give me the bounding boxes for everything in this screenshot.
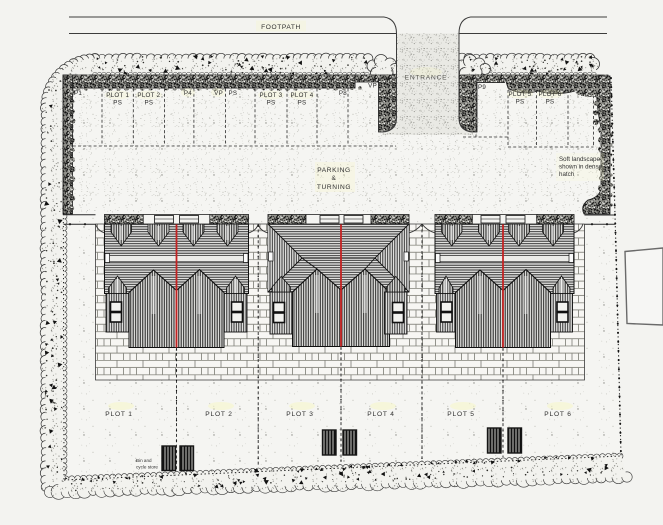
- svg-text:PS: PS: [298, 100, 307, 107]
- svg-text:PS: PS: [267, 100, 276, 107]
- svg-text:ENTRANCE: ENTRANCE: [405, 75, 448, 82]
- svg-text:PLOT 1: PLOT 1: [106, 92, 129, 99]
- svg-text:PLOT 5: PLOT 5: [447, 411, 474, 418]
- svg-text:PLOT 4: PLOT 4: [290, 92, 313, 99]
- svg-text:VP: VP: [368, 83, 377, 90]
- svg-text:PLOT 1: PLOT 1: [105, 411, 132, 418]
- svg-text:P1: P1: [74, 90, 82, 97]
- svg-text:Soft landscape: Soft landscape: [559, 156, 600, 163]
- svg-text:PLOT 4: PLOT 4: [367, 411, 394, 418]
- svg-text:PLOT 5: PLOT 5: [508, 91, 531, 98]
- svg-text:PS: PS: [113, 100, 122, 107]
- svg-text:Bin and: Bin and: [136, 458, 152, 463]
- svg-text:PLOT 3: PLOT 3: [259, 92, 282, 99]
- svg-text:P4: P4: [184, 90, 192, 97]
- svg-text:hatch: hatch: [559, 171, 575, 178]
- svg-text:PARKING: PARKING: [317, 167, 350, 174]
- svg-text:FOOTPATH: FOOTPATH: [261, 24, 301, 31]
- svg-text:shown in dense: shown in dense: [559, 164, 603, 171]
- svg-text:PS: PS: [516, 99, 525, 106]
- svg-text:P9: P9: [478, 84, 486, 91]
- svg-text:P8: P8: [339, 90, 347, 97]
- svg-text:PS: PS: [229, 90, 238, 97]
- svg-text:VP: VP: [214, 90, 223, 97]
- svg-text:PLOT 6: PLOT 6: [544, 411, 571, 418]
- svg-text:PS: PS: [144, 100, 153, 107]
- svg-text:PS: PS: [546, 99, 555, 106]
- svg-text:PLOT 2: PLOT 2: [205, 411, 232, 418]
- svg-text:&: &: [332, 175, 337, 182]
- svg-text:PLOT 6: PLOT 6: [538, 91, 561, 98]
- svg-text:PLOT 3: PLOT 3: [286, 411, 313, 418]
- svg-text:PLOT 2: PLOT 2: [137, 92, 160, 99]
- svg-text:cycle store: cycle store: [136, 465, 158, 470]
- svg-text:TURNING: TURNING: [317, 184, 351, 191]
